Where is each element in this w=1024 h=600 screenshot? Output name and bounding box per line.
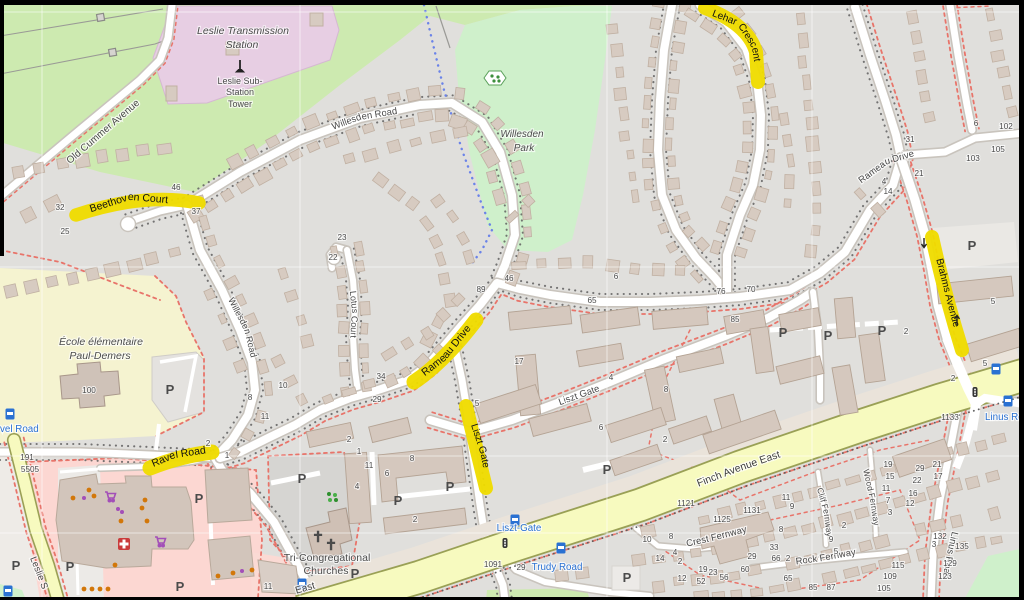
svg-text:89: 89 [476,285,486,294]
svg-text:4: 4 [609,373,614,382]
svg-text:65: 65 [587,296,597,305]
svg-text:Station: Station [226,39,259,51]
svg-text:6: 6 [599,423,604,432]
svg-text:31: 31 [905,135,915,144]
svg-text:14: 14 [655,554,665,563]
svg-text:P: P [394,493,403,508]
svg-text:1091: 1091 [484,560,503,569]
svg-text:10: 10 [278,381,288,390]
svg-text:11: 11 [782,493,791,502]
svg-text:129: 129 [943,559,957,568]
svg-text:123: 123 [938,572,952,581]
svg-text:P: P [878,323,887,338]
svg-text:23: 23 [708,568,718,577]
svg-text:6: 6 [974,119,979,128]
svg-text:12: 12 [677,574,687,583]
svg-text:22: 22 [912,476,922,485]
svg-text:32: 32 [55,203,65,212]
svg-text:9: 9 [829,535,834,544]
svg-text:P: P [351,566,360,581]
svg-text:8: 8 [779,525,784,534]
svg-text:46: 46 [171,183,181,192]
svg-text:5: 5 [991,297,996,306]
svg-text:P: P [195,491,204,506]
svg-text:8: 8 [669,532,674,541]
svg-text:Paul-Demers: Paul-Demers [69,350,131,362]
svg-text:2: 2 [347,435,352,444]
svg-text:vel Road: vel Road [0,424,39,435]
svg-text:Liszt-Gate: Liszt-Gate [497,523,542,534]
svg-text:1125: 1125 [713,515,731,524]
svg-text:132: 132 [933,532,947,541]
svg-text:P: P [12,558,21,573]
svg-text:56: 56 [719,573,729,582]
svg-text:115: 115 [891,561,904,570]
svg-text:85: 85 [730,315,740,324]
svg-text:5: 5 [983,359,988,368]
svg-text:5: 5 [475,399,480,408]
svg-text:21: 21 [932,460,942,469]
svg-text:P: P [623,570,632,585]
svg-text:19: 19 [883,460,893,469]
svg-text:1: 1 [357,447,362,456]
svg-text:Trudy Road: Trudy Road [532,562,583,573]
svg-text:85: 85 [808,583,818,592]
svg-text:2: 2 [663,435,668,444]
svg-text:8: 8 [248,393,253,402]
svg-text:6: 6 [385,469,390,478]
svg-text:1131: 1131 [743,506,761,515]
svg-text:2: 2 [678,557,683,566]
svg-text:Station: Station [226,87,254,97]
svg-text:P: P [779,325,788,340]
svg-text:2: 2 [951,374,956,383]
svg-text:29: 29 [372,395,382,404]
svg-text:60: 60 [740,565,750,574]
svg-text:109: 109 [883,572,897,581]
svg-text:70: 70 [746,285,756,294]
svg-text:66: 66 [771,554,781,563]
svg-text:15: 15 [885,472,895,481]
svg-text:P: P [446,479,455,494]
svg-text:29: 29 [747,552,757,561]
svg-text:11: 11 [264,582,273,591]
svg-text:✝: ✝ [312,529,325,546]
svg-text:P: P [298,471,307,486]
svg-text:2: 2 [206,439,211,448]
svg-text:11: 11 [365,461,374,470]
svg-text:P: P [66,559,75,574]
svg-text:P: P [824,328,833,343]
svg-text:3: 3 [888,508,893,517]
svg-text:10: 10 [642,535,652,544]
svg-text:21: 21 [914,169,924,178]
svg-text:25: 25 [60,227,70,236]
svg-text:29: 29 [915,464,925,473]
svg-text:Tri-Congregational: Tri-Congregational [284,552,371,564]
svg-text:Churches: Churches [304,565,349,577]
svg-text:16: 16 [908,489,918,498]
svg-text:2: 2 [413,515,418,524]
svg-text:7: 7 [886,496,891,505]
svg-text:8: 8 [664,385,669,394]
svg-text:17: 17 [514,357,524,366]
svg-text:105: 105 [877,584,891,593]
svg-text:52: 52 [696,577,706,586]
svg-text:1133: 1133 [941,413,959,422]
svg-text:P: P [176,579,185,594]
svg-text:5505: 5505 [21,465,40,474]
svg-text:2: 2 [904,327,909,336]
svg-text:100: 100 [82,386,96,395]
svg-text:191: 191 [20,453,34,462]
svg-text:Willesden: Willesden [500,129,544,140]
svg-text:23: 23 [337,233,347,242]
svg-text:103: 103 [966,154,980,163]
svg-text:Park: Park [514,143,536,154]
svg-text:4: 4 [673,548,678,557]
svg-text:Leslie Transmission: Leslie Transmission [197,25,289,37]
svg-text:105: 105 [991,145,1005,154]
svg-text:135: 135 [955,542,969,551]
svg-text:6: 6 [614,272,619,281]
svg-text:Linus Ro: Linus Ro [985,412,1024,423]
svg-text:65: 65 [783,574,793,583]
svg-text:87: 87 [826,583,836,592]
svg-text:9: 9 [790,502,795,511]
svg-text:46: 46 [504,274,514,283]
svg-text:22: 22 [328,253,338,262]
svg-text:Tower: Tower [228,99,252,109]
svg-text:29: 29 [516,563,526,572]
svg-text:8: 8 [410,454,415,463]
svg-text:1121: 1121 [677,499,695,508]
svg-text:3: 3 [932,540,937,549]
svg-text:Leslie Sub-: Leslie Sub- [217,76,262,86]
svg-text:76: 76 [716,287,726,296]
svg-text:2: 2 [786,554,791,563]
svg-text:P: P [603,462,612,477]
svg-text:12: 12 [905,499,915,508]
svg-text:11: 11 [882,484,891,493]
svg-text:33: 33 [769,543,779,552]
svg-text:1: 1 [225,451,230,460]
svg-text:37: 37 [191,207,201,216]
svg-text:4: 4 [355,482,360,491]
svg-text:P: P [968,238,977,253]
svg-text:4: 4 [882,177,887,186]
svg-text:5: 5 [834,547,839,556]
svg-text:34: 34 [376,372,386,381]
svg-text:14: 14 [883,187,893,196]
svg-text:102: 102 [999,122,1013,131]
svg-text:2: 2 [842,521,847,530]
svg-text:11: 11 [261,412,270,421]
svg-text:École élémentaire: École élémentaire [59,335,143,348]
svg-text:17: 17 [933,472,943,481]
svg-text:19: 19 [698,565,708,574]
svg-text:P: P [166,382,175,397]
